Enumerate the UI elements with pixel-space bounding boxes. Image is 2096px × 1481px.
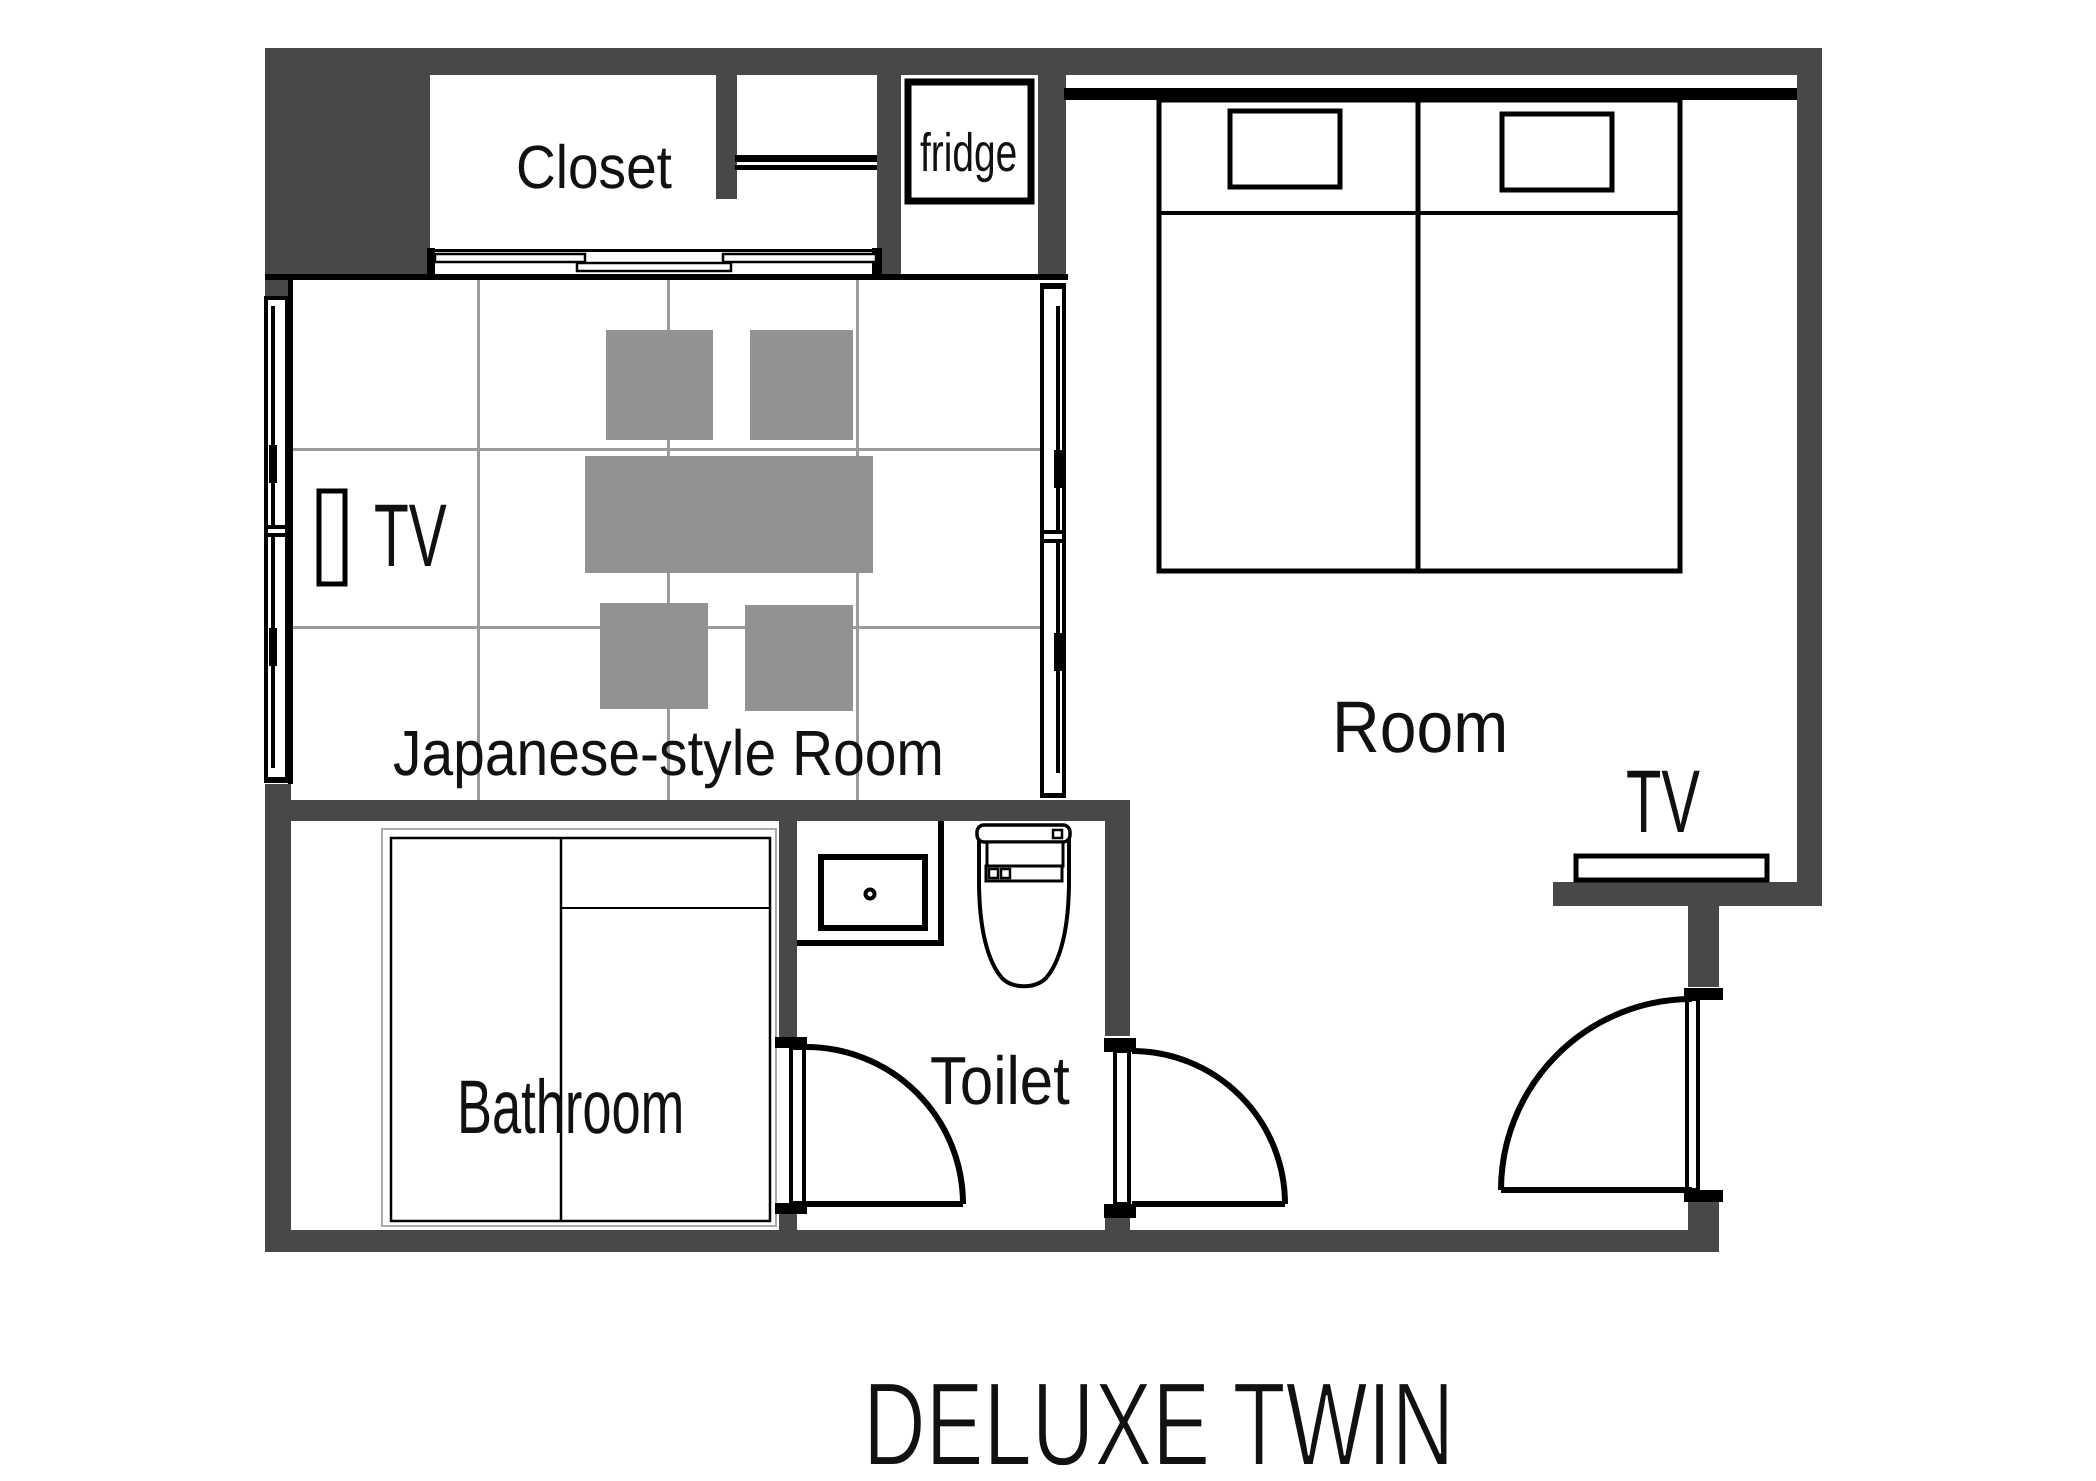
svg-text:Room: Room [1332, 687, 1508, 768]
svg-text:fridge: fridge [920, 123, 1017, 183]
svg-text:TV: TV [1626, 751, 1700, 851]
svg-text:DELUXE TWIN: DELUXE TWIN [863, 1358, 1454, 1481]
svg-text:Bathroom: Bathroom [457, 1065, 684, 1150]
svg-text:Toilet: Toilet [930, 1043, 1070, 1119]
svg-text:Closet: Closet [516, 133, 672, 201]
svg-text:TV: TV [374, 485, 447, 585]
svg-text:Japanese-style Room: Japanese-style Room [393, 717, 944, 789]
